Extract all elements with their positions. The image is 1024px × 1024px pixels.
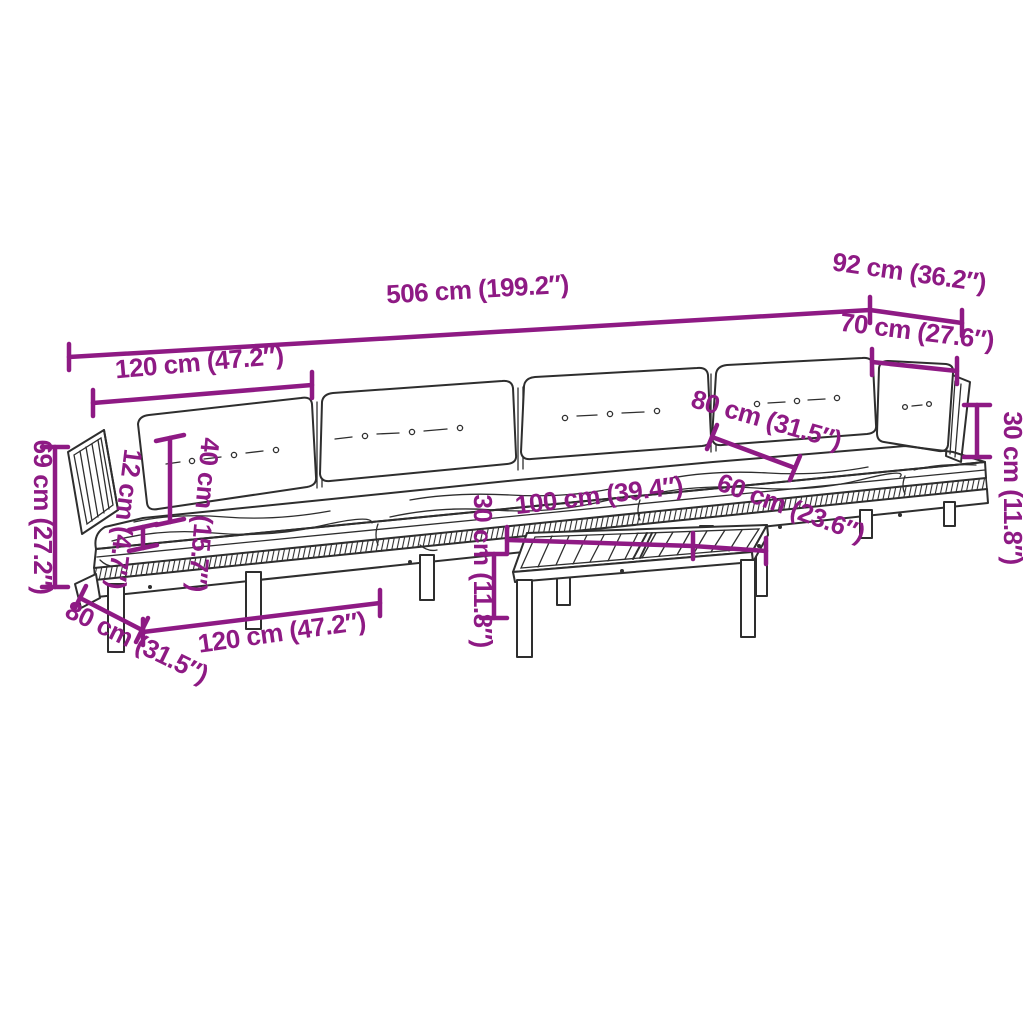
total-height-label: 69 cm (27.2″) — [28, 440, 58, 595]
back-cushion-1 — [138, 398, 316, 510]
sofa-set-dimension-diagram: 506 cm (199.2″) 92 cm (36.2″) 70 cm (27.… — [0, 0, 1024, 1024]
module-depth-label: 80 cm (31.5″) — [61, 594, 213, 689]
back-cushion-3 — [521, 368, 711, 459]
dim-line-side-cushion-height — [964, 405, 990, 457]
total-width-label: 506 cm (199.2″) — [385, 269, 569, 310]
side-cushion-height-label: 30 cm (11.8″) — [998, 411, 1024, 564]
back-cushion-2 — [320, 381, 516, 481]
module-width-top-label: 120 cm (47.2″) — [114, 340, 285, 385]
corner-depth-label: 92 cm (36.2″) — [831, 246, 988, 297]
corner-width-label: 70 cm (27.6″) — [838, 307, 995, 356]
dimension-diagram-page: 506 cm (199.2″) 92 cm (36.2″) 70 cm (27.… — [0, 0, 1024, 1024]
table-height-label: 30 cm (11.8″) — [468, 494, 498, 647]
